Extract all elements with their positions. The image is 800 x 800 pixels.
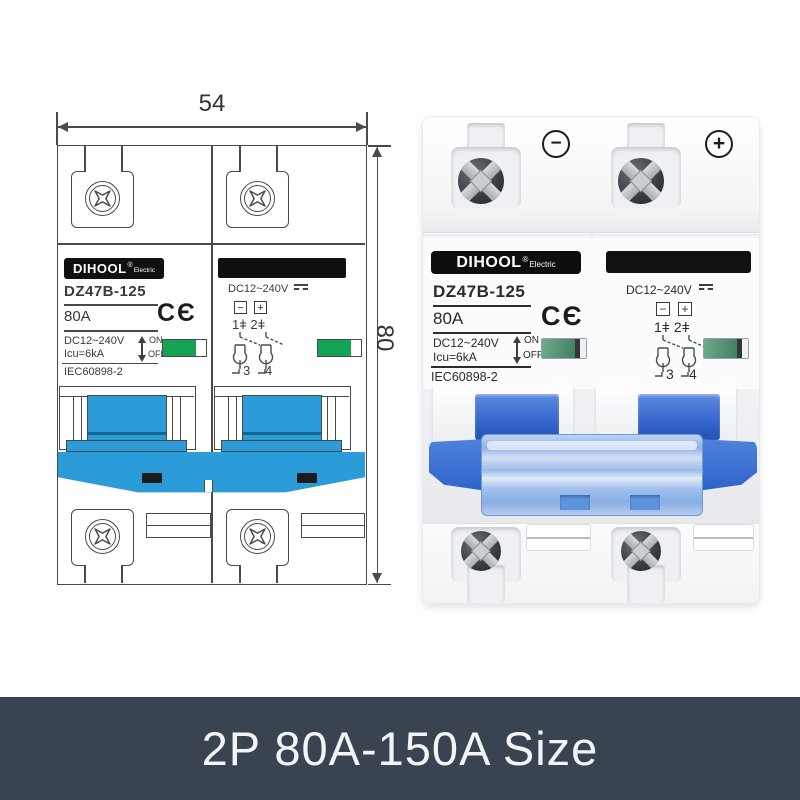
- dim-arrow-right-icon: [356, 122, 366, 132]
- dim-arrow-down-icon: [372, 573, 382, 583]
- rating-label: 80A: [433, 310, 463, 327]
- standard-label: IEC60898-2: [64, 367, 123, 378]
- screw-cross-icon: [91, 525, 114, 548]
- terminal-3-label: 3: [243, 364, 250, 377]
- model-label: DZ47B-125: [433, 283, 525, 300]
- toggle-handle: [87, 395, 167, 442]
- status-window: [541, 338, 587, 359]
- screw-icon: [461, 531, 501, 571]
- screw-cross-icon: [91, 187, 114, 210]
- dim-arrow-up-icon: [372, 147, 382, 157]
- voltage-label: DC12~240V: [64, 336, 124, 347]
- handle-link-bar: [481, 434, 703, 516]
- on-label: ON: [524, 336, 539, 346]
- polarity-plus-icon: +: [705, 130, 733, 158]
- dc-symbol-icon: [699, 284, 713, 290]
- screw-icon: [458, 158, 504, 204]
- dim-width-label: 54: [58, 92, 366, 116]
- off-label: OFF: [523, 351, 543, 361]
- wire-slot: [526, 524, 591, 551]
- brand-sub: Electric: [529, 260, 555, 269]
- toggle-pedestal: [66, 440, 187, 452]
- dc-symbol-icon: [294, 284, 308, 290]
- screw-icon: [618, 158, 664, 204]
- on-label: ON: [149, 336, 163, 345]
- toggle-handle: [242, 395, 322, 442]
- terminal-4-label: 4: [265, 364, 272, 377]
- brand-badge: DIHOOL®Electric: [64, 258, 164, 279]
- brand-badge: DIHOOL®Electric: [431, 251, 581, 274]
- registered-mark: ®: [128, 262, 133, 269]
- caption-text: 2P 80A-150A Size: [202, 721, 599, 776]
- status-window: [162, 339, 207, 357]
- dim-width-line: [58, 126, 366, 128]
- dim-arrow-left-icon: [58, 122, 68, 132]
- bar-slot: [630, 495, 660, 510]
- status-window: [703, 338, 749, 359]
- icu-label: Icu=6kA: [64, 349, 104, 360]
- registered-mark: ®: [523, 255, 529, 264]
- terminal-1-2-label: 1ǂ 2ǂ: [232, 318, 265, 331]
- polarity-minus-icon: −: [542, 130, 570, 158]
- minus-box: −: [656, 302, 670, 316]
- plus-box: +: [678, 302, 692, 316]
- blank-label-bar: [218, 258, 346, 278]
- wire-slot: [301, 525, 365, 538]
- status-window: [317, 339, 362, 357]
- product-image: 54: [0, 0, 800, 800]
- screw-cross-icon: [246, 525, 269, 548]
- ce-mark-icon: CЄ: [157, 301, 197, 326]
- drawing-breaker-body: DIHOOL®Electric DZ47B-125 80A CЄ DC12~24…: [57, 145, 367, 585]
- brand-name: DIHOOL: [456, 254, 521, 272]
- brand-name: DIHOOL: [73, 261, 127, 276]
- on-off-arrow-icon: [513, 338, 521, 362]
- on-off-arrow-icon: [138, 338, 146, 360]
- breaker-circuit-symbol: [226, 332, 286, 376]
- icu-label: Icu=6kA: [433, 351, 477, 363]
- wire-slot: [146, 525, 211, 538]
- plus-box: +: [254, 301, 267, 314]
- dim-ext-line-bottom: [368, 584, 391, 586]
- pole-divider-line: [211, 146, 213, 583]
- ce-mark-icon: CЄ: [541, 303, 584, 330]
- toggle-pedestal: [221, 440, 342, 452]
- dim-height-label: 80: [372, 318, 396, 358]
- brand-sub: Electric: [134, 267, 155, 274]
- bar-slot: [560, 495, 590, 510]
- technical-drawing: 54: [0, 0, 400, 700]
- terminal-3-label: 3: [666, 367, 674, 381]
- screw-cross-icon: [246, 187, 269, 210]
- terminal-pocket: [467, 565, 505, 603]
- dc-voltage-label: DC12~240V: [228, 284, 288, 295]
- terminal-pocket: [627, 565, 665, 603]
- product-photo: − + DIHOOL®Electric DZ47B-125 80A CЄ DC1…: [422, 116, 760, 608]
- voltage-label: DC12~240V: [433, 337, 499, 349]
- base-center-notch: [204, 480, 213, 492]
- standard-label: IEC60898-2: [431, 371, 498, 384]
- blank-label-bar: [606, 251, 751, 273]
- dim-height-line: [377, 147, 379, 583]
- base-slot: [297, 473, 317, 483]
- caption-bar: 2P 80A-150A Size: [0, 697, 800, 800]
- model-label: DZ47B-125: [64, 284, 146, 299]
- breaker-circuit-symbol: [649, 335, 709, 379]
- wire-slot: [693, 524, 754, 551]
- photo-breaker-body: − + DIHOOL®Electric DZ47B-125 80A CЄ DC1…: [422, 116, 760, 604]
- rating-label: 80A: [64, 309, 91, 324]
- screw-icon: [621, 531, 661, 571]
- terminal-4-label: 4: [689, 367, 697, 381]
- minus-box: −: [234, 301, 247, 314]
- dim-ext-line-right: [366, 112, 368, 145]
- base-slot: [142, 473, 162, 483]
- terminal-1-2-label: 1ǂ 2ǂ: [654, 320, 690, 334]
- dc-voltage-label: DC12~240V: [626, 284, 692, 296]
